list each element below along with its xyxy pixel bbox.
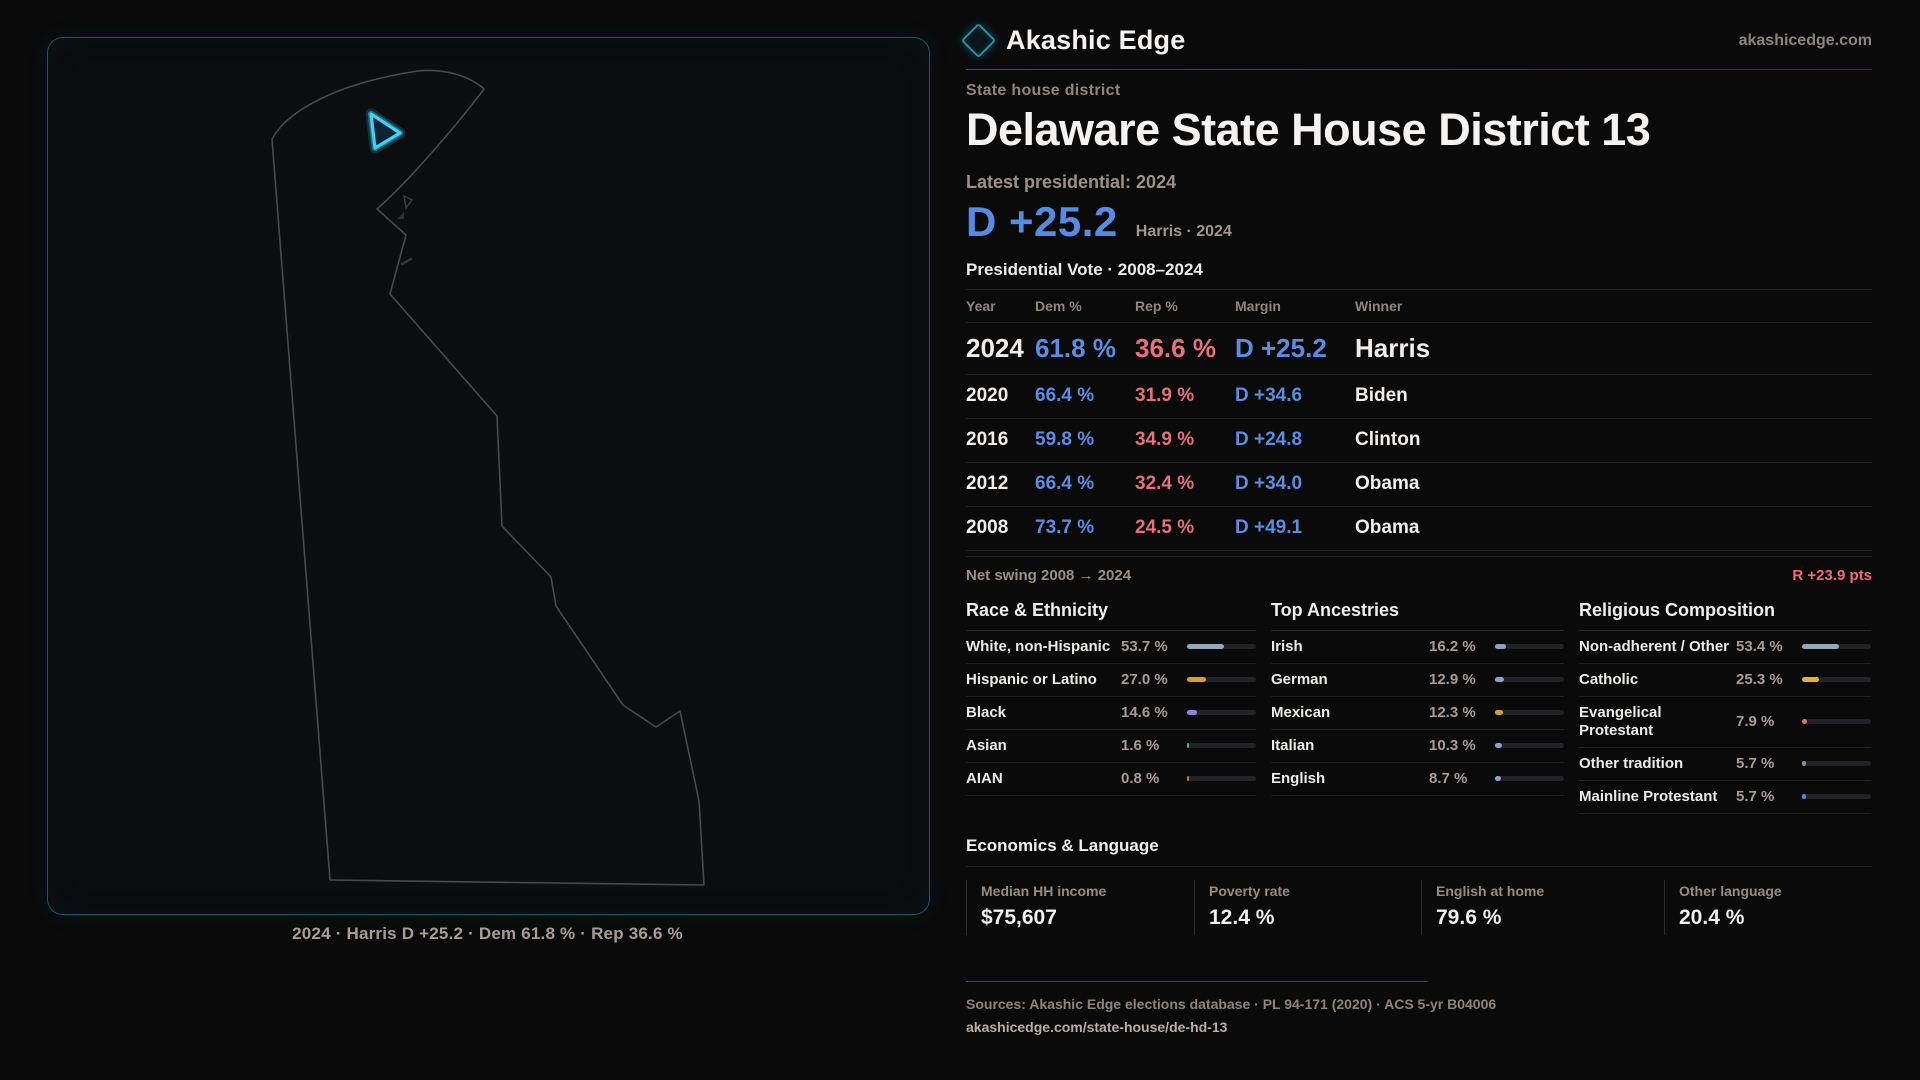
demo-row-irish: Irish16.2 % (1271, 631, 1564, 664)
demo-row-value: 5.7 % (1736, 755, 1802, 772)
demo-row-value: 7.9 % (1736, 713, 1802, 730)
stat-label: Other language (1679, 883, 1872, 899)
economics-title: Economics & Language (966, 836, 1872, 856)
header: Akashic Edge akashicedge.com (966, 0, 1872, 56)
demographics-grid: Race & EthnicityWhite, non-Hispanic53.7 … (966, 600, 1872, 814)
demo-row-bar (1495, 743, 1564, 748)
vote-2008-rep: 24.5 % (1135, 517, 1235, 539)
vote-2012-margin: D +34.0 (1235, 473, 1355, 495)
column-header-winner: Winner (1355, 298, 1872, 314)
latest-presidential-label: Latest presidential: 2024 (966, 172, 1872, 193)
demo-row-bar (1187, 644, 1256, 649)
delaware-map[interactable] (48, 38, 929, 914)
sources-text: Sources: Akashic Edge elections database… (966, 996, 1872, 1012)
map-detail-dash (402, 259, 411, 264)
demo-column-title: Religious Composition (1579, 600, 1871, 631)
demo-row-bar (1187, 776, 1256, 781)
demo-row-label: Non-adherent / Other (1579, 638, 1736, 656)
vote-row-2024: 202461.8 %36.6 %D +25.2Harris (966, 323, 1872, 375)
stat-value: 12.4 % (1209, 906, 1421, 930)
demo-row-bar-fill (1495, 644, 1506, 649)
demo-row-label: Mexican (1271, 704, 1429, 722)
stat-value: 20.4 % (1679, 906, 1872, 930)
headline-margin: D +25.2 Harris · 2024 (966, 198, 1872, 246)
demo-row-italian: Italian10.3 % (1271, 730, 1564, 763)
vote-table-title: Presidential Vote · 2008–2024 (966, 260, 1872, 280)
vote-row-2020: 202066.4 %31.9 %D +34.6Biden (966, 375, 1872, 419)
vote-2016-rep: 34.9 % (1135, 429, 1235, 451)
demo-row-bar-fill (1802, 794, 1806, 799)
demo-row-value: 53.7 % (1121, 638, 1187, 655)
demo-row-label: Black (966, 704, 1121, 722)
demo-row-label: AIAN (966, 770, 1121, 788)
demo-row-aian: AIAN0.8 % (966, 763, 1256, 796)
vote-row-2012: 201266.4 %32.4 %D +34.0Obama (966, 463, 1872, 507)
vote-2020-margin: D +34.6 (1235, 385, 1355, 407)
demo-row-label: Evangelical Protestant (1579, 704, 1736, 740)
demo-row-label: Catholic (1579, 671, 1736, 689)
demo-row-evangelical-protestant: Evangelical Protestant7.9 % (1579, 697, 1871, 748)
permalink[interactable]: akashicedge.com/state-house/de-hd-13 (966, 1019, 1872, 1035)
demo-row-value: 12.9 % (1429, 671, 1495, 688)
demo-row-hispanic-or-latino: Hispanic or Latino27.0 % (966, 664, 1256, 697)
economics-divider (966, 866, 1872, 867)
demo-row-bar (1495, 677, 1564, 682)
map-detail-notch (404, 196, 412, 208)
vote-table: YearDem %Rep %MarginWinner202461.8 %36.6… (966, 289, 1872, 551)
net-swing-label: Net swing 2008 → 2024 (966, 567, 1131, 584)
vote-2008-year: 2008 (966, 517, 1035, 539)
vote-2008-dem: 73.7 % (1035, 517, 1135, 539)
vote-2008-margin: D +49.1 (1235, 517, 1355, 539)
net-swing-value: R +23.9 pts (1792, 567, 1872, 584)
district-map-panel[interactable] (47, 37, 930, 915)
vote-2016-dem: 59.8 % (1035, 429, 1135, 451)
stat-label: English at home (1436, 883, 1664, 899)
stat-label: Poverty rate (1209, 883, 1421, 899)
demo-row-label: English (1271, 770, 1429, 788)
demo-row-bar (1802, 794, 1871, 799)
demo-row-non-adherent-other: Non-adherent / Other53.4 % (1579, 631, 1871, 664)
demo-row-label: Irish (1271, 638, 1429, 656)
map-caption: 2024 · Harris D +25.2 · Dem 61.8 % · Rep… (47, 924, 928, 944)
economics-stats: Median HH income$75,607Poverty rate12.4 … (966, 880, 1872, 935)
demo-column-title: Top Ancestries (1271, 600, 1564, 631)
demo-row-bar-fill (1495, 743, 1502, 748)
page-title: Delaware State House District 13 (966, 105, 1872, 155)
column-header-dem: Dem % (1035, 298, 1135, 314)
district-dashboard: 2024 · Harris D +25.2 · Dem 61.8 % · Rep… (0, 0, 1920, 1080)
district-13-shape[interactable] (371, 114, 400, 148)
stat-other-language: Other language20.4 % (1664, 880, 1872, 935)
brand-domain-link[interactable]: akashicedge.com (1739, 32, 1872, 50)
demo-column-religious-composition: Religious CompositionNon-adherent / Othe… (1579, 600, 1871, 814)
demo-row-mexican: Mexican12.3 % (1271, 697, 1564, 730)
demo-row-bar-fill (1187, 776, 1189, 781)
demo-row-bar-fill (1802, 719, 1807, 724)
demo-column-race-ethnicity: Race & EthnicityWhite, non-Hispanic53.7 … (966, 600, 1256, 796)
vote-2024-dem: 61.8 % (1035, 333, 1135, 364)
demo-row-label: Asian (966, 737, 1121, 755)
demo-row-value: 12.3 % (1429, 704, 1495, 721)
column-header-margin: Margin (1235, 298, 1355, 314)
vote-2024-winner: Harris (1355, 333, 1872, 364)
demo-row-value: 27.0 % (1121, 671, 1187, 688)
vote-2020-year: 2020 (966, 385, 1035, 407)
demo-row-bar (1802, 719, 1871, 724)
column-header-year: Year (966, 298, 1035, 314)
demo-row-bar-fill (1187, 677, 1206, 682)
demo-row-asian: Asian1.6 % (966, 730, 1256, 763)
demo-row-bar-fill (1495, 710, 1503, 715)
demo-row-catholic: Catholic25.3 % (1579, 664, 1871, 697)
vote-2016-year: 2016 (966, 429, 1035, 451)
brand-diamond-icon (961, 23, 996, 58)
demo-row-value: 16.2 % (1429, 638, 1495, 655)
demo-row-bar (1187, 710, 1256, 715)
stat-value: $75,607 (981, 906, 1194, 930)
vote-2024-year: 2024 (966, 333, 1035, 364)
vote-2012-winner: Obama (1355, 473, 1872, 495)
demo-row-bar-fill (1802, 761, 1806, 766)
vote-2024-rep: 36.6 % (1135, 333, 1235, 364)
brand: Akashic Edge (966, 25, 1185, 56)
stat-median-hh-income: Median HH income$75,607 (966, 880, 1194, 935)
vote-row-2008: 200873.7 %24.5 %D +49.1Obama (966, 507, 1872, 551)
demo-row-label: White, non-Hispanic (966, 638, 1121, 656)
demo-row-value: 1.6 % (1121, 737, 1187, 754)
demo-row-bar-fill (1495, 776, 1501, 781)
demo-row-bar (1802, 677, 1871, 682)
brand-name: Akashic Edge (1006, 25, 1185, 56)
kicker-label: State house district (966, 82, 1872, 100)
header-divider (966, 69, 1872, 70)
net-swing-row: Net swing 2008 → 2024 R +23.9 pts (966, 556, 1872, 584)
demo-row-value: 0.8 % (1121, 770, 1187, 787)
demo-row-label: German (1271, 671, 1429, 689)
stat-poverty-rate: Poverty rate12.4 % (1194, 880, 1421, 935)
demo-row-bar (1802, 761, 1871, 766)
headline-margin-context: Harris · 2024 (1136, 223, 1232, 241)
footer-divider (966, 981, 1428, 982)
demo-row-white-non-hispanic: White, non-Hispanic53.7 % (966, 631, 1256, 664)
vote-2020-rep: 31.9 % (1135, 385, 1235, 407)
demo-column-title: Race & Ethnicity (966, 600, 1256, 631)
demo-row-value: 25.3 % (1736, 671, 1802, 688)
vote-row-2016: 201659.8 %34.9 %D +24.8Clinton (966, 419, 1872, 463)
vote-2020-winner: Biden (1355, 385, 1872, 407)
demo-row-value: 53.4 % (1736, 638, 1802, 655)
demo-row-bar-fill (1495, 677, 1504, 682)
demo-row-value: 14.6 % (1121, 704, 1187, 721)
vote-2012-rep: 32.4 % (1135, 473, 1235, 495)
demo-row-other-tradition: Other tradition5.7 % (1579, 748, 1871, 781)
demo-row-label: Other tradition (1579, 755, 1736, 773)
column-header-rep: Rep % (1135, 298, 1235, 314)
demo-row-english: English8.7 % (1271, 763, 1564, 796)
vote-2020-dem: 66.4 % (1035, 385, 1135, 407)
demo-row-bar-fill (1802, 677, 1819, 682)
demo-row-bar-fill (1187, 710, 1197, 715)
demo-row-bar (1495, 776, 1564, 781)
demo-column-top-ancestries: Top AncestriesIrish16.2 %German12.9 %Mex… (1271, 600, 1564, 796)
demo-row-mainline-protestant: Mainline Protestant5.7 % (1579, 781, 1871, 814)
demo-row-bar-fill (1802, 644, 1839, 649)
demo-row-label: Hispanic or Latino (966, 671, 1121, 689)
demo-row-bar-fill (1187, 743, 1189, 748)
stat-label: Median HH income (981, 883, 1194, 899)
demo-row-bar (1187, 743, 1256, 748)
stat-english-at-home: English at home79.6 % (1421, 880, 1664, 935)
map-detail-triangle (397, 212, 404, 219)
vote-2016-margin: D +24.8 (1235, 429, 1355, 451)
vote-2016-winner: Clinton (1355, 429, 1872, 451)
demo-row-value: 5.7 % (1736, 788, 1802, 805)
headline-margin-value: D +25.2 (966, 198, 1118, 246)
vote-2012-year: 2012 (966, 473, 1035, 495)
district-summary: Akashic Edge akashicedge.com State house… (966, 0, 1872, 1035)
demo-row-value: 10.3 % (1429, 737, 1495, 754)
demo-row-bar (1802, 644, 1871, 649)
demo-row-black: Black14.6 % (966, 697, 1256, 730)
demo-row-bar (1495, 644, 1564, 649)
state-outline (272, 70, 704, 885)
demo-row-bar-fill (1187, 644, 1224, 649)
demo-row-value: 8.7 % (1429, 770, 1495, 787)
demo-row-label: Italian (1271, 737, 1429, 755)
vote-2008-winner: Obama (1355, 517, 1872, 539)
demo-row-bar (1495, 710, 1564, 715)
demo-row-german: German12.9 % (1271, 664, 1564, 697)
vote-2024-margin: D +25.2 (1235, 333, 1355, 364)
vote-table-header: YearDem %Rep %MarginWinner (966, 289, 1872, 323)
stat-value: 79.6 % (1436, 906, 1664, 930)
demo-row-label: Mainline Protestant (1579, 788, 1736, 806)
demo-row-bar (1187, 677, 1256, 682)
vote-2012-dem: 66.4 % (1035, 473, 1135, 495)
